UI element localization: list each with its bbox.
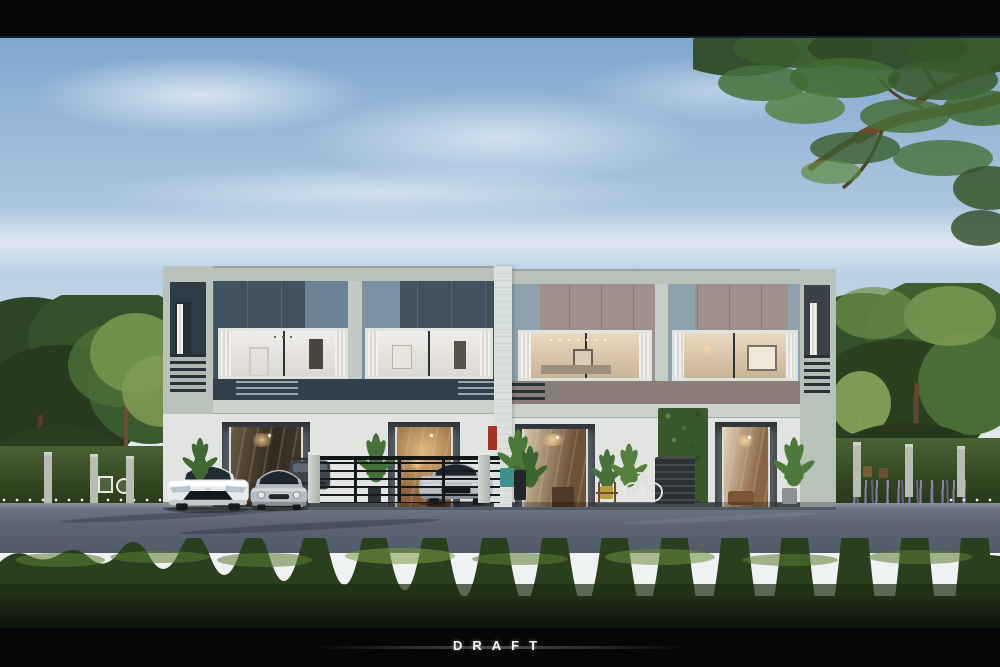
fence-post bbox=[126, 456, 134, 503]
architectural-rendering: DRAFT bbox=[0, 0, 1000, 667]
interior-railing bbox=[236, 381, 298, 399]
chandelier bbox=[547, 335, 607, 345]
fence-post bbox=[957, 446, 965, 497]
upper-glass-panels bbox=[213, 281, 497, 400]
right-garden bbox=[831, 438, 1000, 512]
curtain bbox=[221, 331, 231, 376]
black-metal-fence bbox=[310, 456, 500, 503]
unit4-upper-window bbox=[672, 330, 798, 381]
unit1-upper-window bbox=[218, 328, 348, 379]
floor-band bbox=[213, 400, 505, 414]
interior-lamp bbox=[701, 343, 713, 355]
spandrel-panel bbox=[505, 381, 800, 404]
curtain bbox=[335, 331, 345, 376]
interior-railing bbox=[508, 383, 545, 402]
unit3-glass-door bbox=[522, 429, 588, 507]
side-balcony bbox=[804, 285, 830, 393]
overhanging-tree-branch bbox=[693, 38, 1000, 258]
interior-door-frame bbox=[249, 347, 269, 377]
curtain bbox=[675, 333, 684, 378]
window-mullion bbox=[428, 331, 430, 376]
unit3-entry bbox=[515, 424, 595, 507]
concrete-post bbox=[478, 452, 490, 503]
letterbox-top bbox=[0, 0, 1000, 38]
fence-post bbox=[44, 452, 52, 503]
fence-post bbox=[90, 454, 98, 503]
interior-cabinet bbox=[747, 345, 777, 371]
side-balcony bbox=[170, 282, 206, 392]
draft-watermark: DRAFT bbox=[0, 638, 1000, 653]
balcony-railing bbox=[804, 355, 830, 393]
foreground-hedge bbox=[0, 538, 1000, 602]
window-mullion bbox=[733, 333, 735, 378]
roof-fascia bbox=[163, 266, 505, 281]
curtain bbox=[639, 333, 649, 378]
soffit-downlight bbox=[268, 434, 271, 437]
unit4-entry bbox=[715, 422, 777, 507]
interior-railing bbox=[458, 381, 497, 399]
interior-shelf bbox=[309, 339, 323, 369]
dark-lawn bbox=[0, 596, 1000, 632]
soffit-downlight bbox=[556, 436, 559, 439]
interior-counter bbox=[541, 365, 611, 374]
wooden-chair bbox=[863, 466, 872, 477]
curtain bbox=[810, 303, 817, 363]
floor-band bbox=[505, 404, 800, 418]
wooden-chair bbox=[879, 468, 888, 478]
balcony-railing bbox=[170, 354, 206, 392]
fence-post bbox=[905, 444, 913, 497]
curtain bbox=[480, 331, 490, 376]
roof-fascia bbox=[505, 269, 836, 284]
soffit-downlight bbox=[430, 434, 433, 437]
letterbox-bottom: DRAFT bbox=[0, 628, 1000, 667]
unit3-upper-window bbox=[518, 330, 652, 381]
right-end-column bbox=[800, 269, 836, 507]
curtain bbox=[521, 333, 531, 378]
fire-extinguisher-cabinet bbox=[488, 426, 497, 450]
unit4-glass-door bbox=[722, 427, 770, 507]
silver-mini-hatchback bbox=[245, 458, 313, 513]
upper-panels bbox=[505, 284, 800, 404]
white-sedan bbox=[163, 452, 253, 514]
soffit-downlight bbox=[748, 436, 751, 439]
unit2-upper-window bbox=[365, 328, 493, 379]
interior-art bbox=[392, 345, 412, 369]
curtain bbox=[786, 333, 795, 378]
garden-chair bbox=[98, 476, 113, 493]
interior-shelf bbox=[454, 341, 466, 369]
fence-post bbox=[853, 442, 861, 497]
hanging-plant bbox=[271, 334, 297, 340]
gate-letterbox bbox=[655, 457, 695, 504]
spandrel-glass bbox=[213, 379, 497, 400]
curtain bbox=[368, 331, 378, 376]
